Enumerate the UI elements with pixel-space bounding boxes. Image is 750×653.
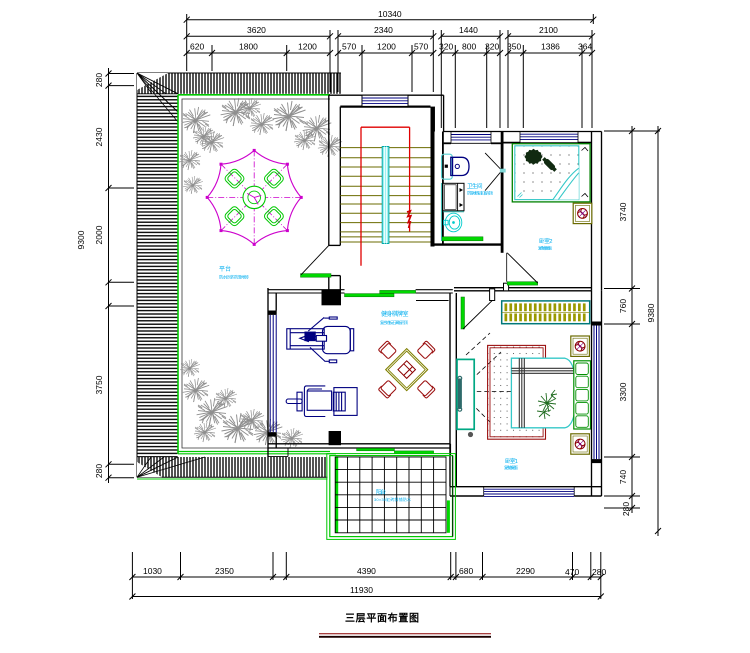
svg-text:9380: 9380 [646, 303, 656, 322]
svg-text:2350: 2350 [215, 566, 234, 576]
svg-text:平台: 平台 [219, 265, 231, 273]
svg-text:3740: 3740 [618, 202, 628, 221]
svg-text:740: 740 [618, 470, 628, 484]
svg-text:3300: 3300 [618, 382, 628, 401]
svg-text:320: 320 [485, 42, 499, 52]
svg-text:280: 280 [592, 567, 606, 577]
svg-text:三层平面布置图: 三层平面布置图 [345, 612, 419, 625]
svg-text:570: 570 [342, 42, 356, 52]
svg-text:1386: 1386 [541, 42, 560, 52]
svg-text:10340: 10340 [378, 9, 402, 19]
svg-text:2000: 2000 [94, 225, 104, 244]
svg-text:1800: 1800 [239, 42, 258, 52]
svg-text:760: 760 [618, 299, 628, 313]
svg-text:复合地板-石膏板吊顶: 复合地板-石膏板吊顶 [380, 319, 408, 325]
svg-text:1200: 1200 [377, 42, 396, 52]
svg-text:620: 620 [190, 42, 204, 52]
svg-text:复合地板地面: 复合地板地面 [504, 464, 518, 470]
svg-text:280: 280 [94, 464, 104, 478]
svg-text:800: 800 [462, 42, 476, 52]
svg-text:复合地板地面: 复合地板地面 [538, 245, 552, 251]
svg-text:280: 280 [94, 73, 104, 87]
svg-text:2340: 2340 [374, 25, 393, 35]
svg-text:570: 570 [414, 42, 428, 52]
svg-text:364: 364 [578, 42, 592, 52]
svg-text:1030: 1030 [143, 566, 162, 576]
svg-text:2100: 2100 [539, 25, 558, 35]
svg-text:4390: 4390 [357, 566, 376, 576]
svg-text:1200: 1200 [298, 42, 317, 52]
svg-text:280: 280 [621, 502, 631, 516]
svg-text:卫生间: 卫生间 [467, 182, 483, 190]
svg-text:2430: 2430 [94, 127, 104, 146]
svg-text:3750: 3750 [94, 375, 104, 394]
svg-text:470: 470 [565, 567, 579, 577]
svg-text:350: 350 [507, 42, 521, 52]
svg-text:3620: 3620 [247, 25, 266, 35]
svg-text:卧室2: 卧室2 [539, 237, 553, 245]
svg-text:680: 680 [459, 566, 473, 576]
svg-text:阳台: 阳台 [376, 488, 386, 496]
svg-text:卧室1: 卧室1 [505, 457, 518, 465]
svg-text:30×30缸砖斜铺防水: 30×30缸砖斜铺防水 [374, 496, 411, 502]
svg-text:11930: 11930 [350, 585, 373, 595]
svg-text:320: 320 [439, 42, 453, 52]
svg-text:1440: 1440 [459, 25, 478, 35]
svg-text:健身棋牌室: 健身棋牌室 [381, 310, 409, 318]
svg-text:防水砂浆-防滑地砖: 防水砂浆-防滑地砖 [219, 274, 249, 281]
svg-text:9300: 9300 [76, 230, 86, 249]
svg-text:防滑地砖-铝扣板吊顶: 防滑地砖-铝扣板吊顶 [467, 190, 493, 196]
svg-text:2290: 2290 [516, 566, 535, 576]
